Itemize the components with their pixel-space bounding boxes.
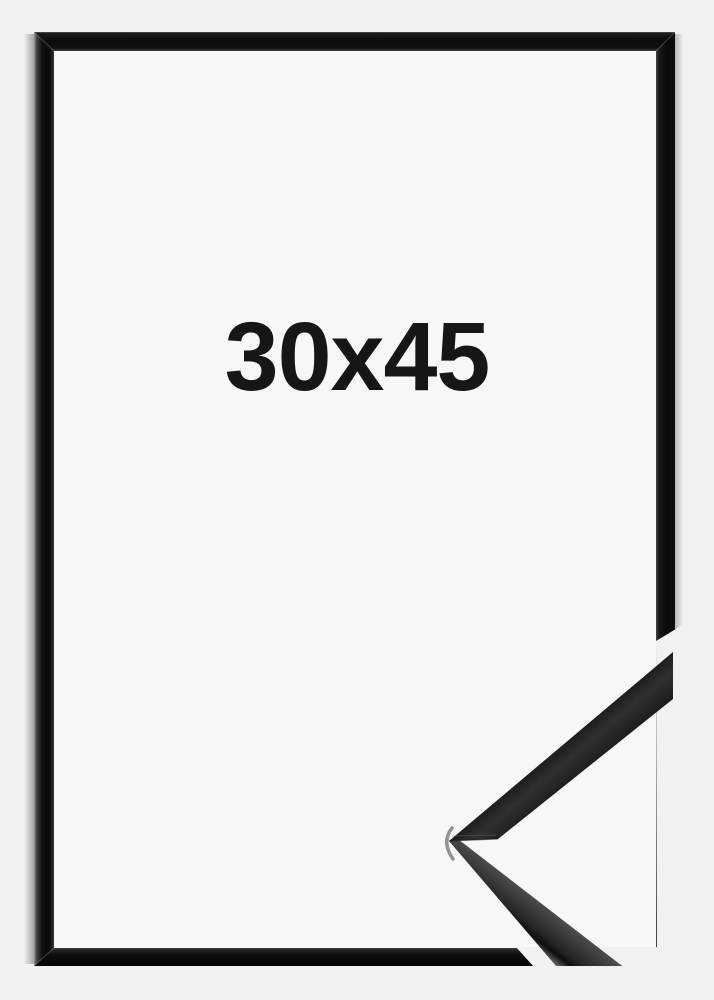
frame-illustration [0, 0, 714, 1000]
frame-inner-area [54, 51, 656, 948]
frame-left-soft-edge [24, 34, 34, 964]
frame-left-band [34, 32, 54, 966]
size-label: 30x45 [0, 306, 714, 408]
frame-top-band [34, 32, 675, 51]
product-photo: 30x45 [0, 0, 714, 1000]
